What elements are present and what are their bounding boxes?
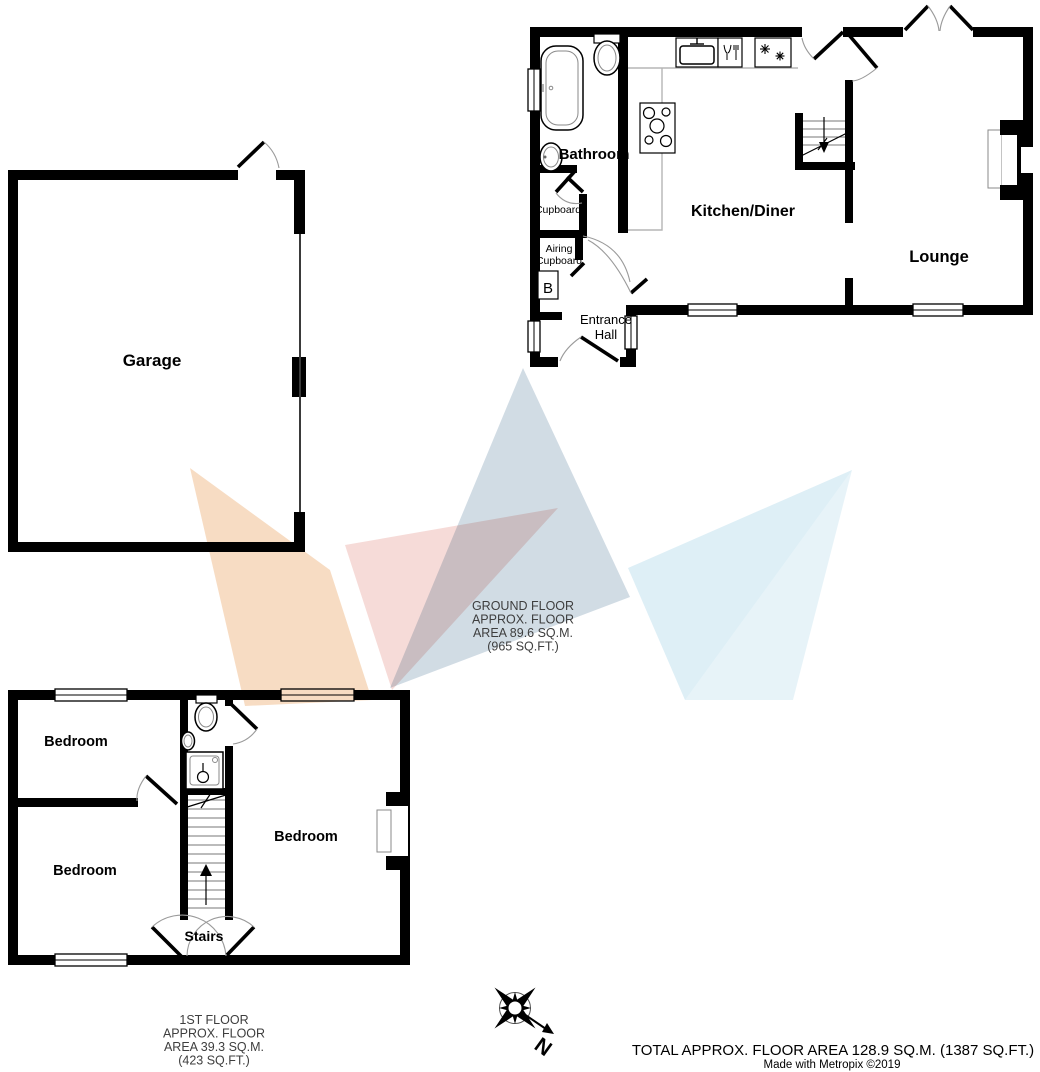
first-floor-caption-line2: APPROX. FLOOR	[163, 1027, 265, 1041]
garage-plan: Garage	[8, 142, 306, 552]
watermark	[190, 368, 852, 706]
ground-floor-caption-line4: (965 SQ.FT.)	[487, 640, 559, 654]
first-floor-plan: Bedroom Bedroom Bedroom Stairs	[8, 689, 410, 966]
entrance-hall-label-line1: Entrance	[580, 312, 632, 327]
stairs-up-arrow	[200, 864, 212, 876]
boiler-label: B	[543, 280, 553, 297]
bedroom-bottom-left-label: Bedroom	[53, 863, 117, 879]
staircase-up	[184, 793, 229, 908]
sink-unit-icon	[676, 38, 718, 67]
first-floor-caption: 1ST FLOOR APPROX. FLOOR AREA 39.3 SQ.M. …	[163, 1013, 265, 1068]
door-swing	[567, 177, 583, 192]
fireplace	[377, 792, 410, 870]
entrance-hall-label-line2: Hall	[595, 327, 618, 342]
ground-floor-caption-line2: APPROX. FLOOR	[472, 613, 574, 627]
cupboard-label: Cupboard	[535, 204, 581, 216]
airing-cupboard-label-line2: Cupboard	[536, 255, 582, 267]
hob-icon	[640, 103, 675, 153]
shower-icon	[186, 752, 223, 789]
credit-text: Made with Metropix ©2019	[764, 1059, 901, 1071]
door-swing	[137, 776, 177, 804]
first-floor-caption-line4: (423 SQ.FT.)	[178, 1054, 250, 1068]
airing-cupboard-label-line1: Airing	[546, 243, 573, 255]
ground-floor-caption-line3: AREA 89.6 SQ.M.	[473, 626, 573, 640]
bath-icon	[541, 46, 583, 130]
door-swing	[231, 704, 257, 744]
garage-door-swing	[238, 142, 279, 168]
total-area-text: TOTAL APPROX. FLOOR AREA 128.9 SQ.M. (13…	[632, 1042, 1034, 1059]
compass-rose: N	[495, 988, 556, 1061]
dishwasher-icon	[718, 38, 742, 67]
bathroom-label: Bathroom	[559, 146, 630, 163]
toilet-icon	[195, 695, 217, 731]
door-swing	[802, 32, 843, 59]
first-floor-caption-line3: AREA 39.3 SQ.M.	[164, 1040, 264, 1054]
fireplace	[988, 120, 1033, 200]
kitchen-diner-label: Kitchen/Diner	[691, 203, 795, 220]
door-swing	[583, 236, 647, 293]
door-swing	[849, 35, 877, 81]
ground-floor-caption: GROUND FLOOR APPROX. FLOOR AREA 89.6 SQ.…	[472, 599, 574, 654]
window	[55, 689, 127, 701]
garage-label: Garage	[123, 351, 182, 370]
window	[55, 954, 127, 966]
stairs-label: Stairs	[185, 928, 224, 944]
bedroom-top-left-label: Bedroom	[44, 734, 108, 750]
window	[528, 321, 540, 352]
window	[913, 304, 963, 316]
ground-floor-caption-line1: GROUND FLOOR	[472, 599, 574, 613]
french-doors	[905, 6, 973, 31]
ground-floor-plan: B Bathroom Kitchen/Diner Lounge Cupboard…	[528, 6, 1033, 367]
basin-icon	[182, 732, 195, 750]
fridge-freezer-icon	[755, 38, 791, 67]
lounge-label: Lounge	[909, 248, 969, 266]
window	[688, 304, 737, 316]
north-label: N	[530, 1033, 556, 1061]
compass-hub	[508, 1001, 522, 1015]
toilet-icon	[594, 34, 620, 75]
boiler-box: B	[538, 271, 558, 299]
floorplan-canvas: Garage	[0, 0, 1040, 1072]
bedroom-right-label: Bedroom	[274, 829, 338, 845]
watermark-beam-orange	[190, 468, 372, 706]
window	[528, 69, 540, 111]
first-floor-caption-line1: 1ST FLOOR	[179, 1013, 248, 1027]
